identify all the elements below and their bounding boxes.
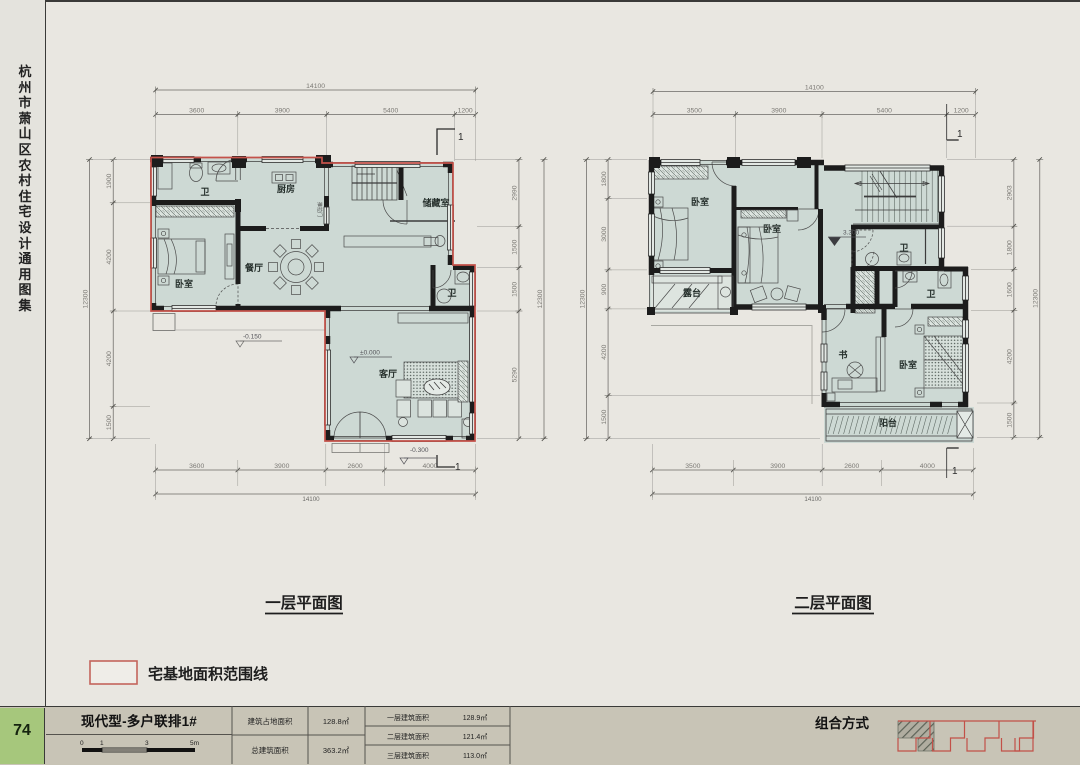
svg-text:1800: 1800 — [601, 171, 608, 186]
svg-text:113.0㎡: 113.0㎡ — [463, 752, 487, 760]
svg-text:12300: 12300 — [82, 289, 89, 308]
svg-text:客厅: 客厅 — [378, 368, 397, 379]
svg-text:12300: 12300 — [579, 289, 586, 308]
svg-text:建筑占地面积: 建筑占地面积 — [248, 716, 293, 726]
svg-text:1200: 1200 — [458, 107, 473, 114]
svg-text:121.4㎡: 121.4㎡ — [463, 733, 488, 741]
svg-text:128.8㎡: 128.8㎡ — [323, 717, 350, 726]
svg-text:3500: 3500 — [685, 463, 700, 470]
svg-text:卧室: 卧室 — [175, 278, 193, 289]
svg-text:总建筑面积: 总建筑面积 — [251, 745, 289, 755]
svg-text:-0.300: -0.300 — [410, 447, 429, 454]
svg-text:三层建筑面积: 三层建筑面积 — [387, 751, 429, 760]
svg-text:12300: 12300 — [537, 289, 544, 308]
svg-text:组合方式: 组合方式 — [815, 715, 869, 731]
svg-text:3900: 3900 — [274, 463, 289, 470]
svg-text:卫: 卫 — [899, 243, 908, 253]
svg-text:卫: 卫 — [447, 288, 456, 298]
svg-text:14100: 14100 — [306, 83, 325, 90]
svg-text:5400: 5400 — [383, 107, 398, 114]
svg-text:3900: 3900 — [771, 107, 786, 114]
svg-text:3.300: 3.300 — [843, 230, 860, 237]
svg-text:0: 0 — [80, 740, 84, 747]
svg-text:5400: 5400 — [877, 107, 892, 114]
svg-text:1: 1 — [458, 132, 464, 143]
svg-text:3600: 3600 — [189, 107, 204, 114]
svg-text:4000: 4000 — [920, 463, 935, 470]
svg-text:推拉门: 推拉门 — [316, 202, 323, 217]
svg-text:3: 3 — [145, 740, 149, 747]
svg-text:一层建筑面积: 一层建筑面积 — [387, 713, 429, 722]
svg-text:14100: 14100 — [804, 496, 822, 503]
svg-text:2600: 2600 — [348, 463, 363, 470]
svg-text:1500: 1500 — [601, 409, 608, 424]
svg-text:一层平面图: 一层平面图 — [265, 594, 343, 612]
svg-text:4200: 4200 — [601, 344, 608, 359]
svg-text:3000: 3000 — [601, 226, 608, 241]
svg-text:书: 书 — [838, 349, 847, 360]
svg-text:卧室: 卧室 — [691, 196, 709, 207]
svg-text:5m: 5m — [190, 740, 199, 747]
svg-text:卫: 卫 — [926, 289, 935, 299]
svg-text:1200: 1200 — [954, 107, 969, 114]
svg-text:1500: 1500 — [106, 415, 113, 430]
svg-text:卧室: 卧室 — [899, 359, 917, 370]
svg-text:3900: 3900 — [275, 107, 290, 114]
svg-text:2903: 2903 — [1007, 185, 1014, 200]
svg-text:12300: 12300 — [1033, 289, 1040, 308]
svg-text:1500: 1500 — [512, 282, 519, 297]
svg-text:3900: 3900 — [770, 463, 785, 470]
svg-text:1: 1 — [952, 466, 958, 477]
svg-text:卫: 卫 — [200, 187, 209, 197]
svg-text:4200: 4200 — [106, 351, 113, 366]
svg-text:2990: 2990 — [512, 185, 519, 200]
svg-text:128.9㎡: 128.9㎡ — [463, 714, 488, 722]
svg-text:3600: 3600 — [189, 463, 204, 470]
svg-text:2600: 2600 — [844, 463, 859, 470]
svg-text:1600: 1600 — [1007, 282, 1014, 297]
svg-text:3500: 3500 — [687, 107, 702, 114]
svg-text:14100: 14100 — [302, 496, 320, 503]
svg-text:露台: 露台 — [683, 287, 701, 298]
svg-text:1500: 1500 — [512, 239, 519, 254]
svg-text:宅基地面积范围线: 宅基地面积范围线 — [148, 665, 268, 683]
svg-text:二层平面图: 二层平面图 — [794, 594, 872, 612]
svg-text:储藏室: 储藏室 — [422, 197, 449, 208]
svg-text:阳台: 阳台 — [879, 417, 897, 428]
svg-text:餐厅: 餐厅 — [244, 262, 263, 273]
svg-text:1500: 1500 — [1007, 412, 1014, 427]
svg-text:1900: 1900 — [106, 173, 113, 188]
svg-text:厨房: 厨房 — [277, 183, 295, 194]
svg-text:1: 1 — [100, 740, 104, 747]
svg-text:4200: 4200 — [106, 249, 113, 264]
svg-text:4200: 4200 — [1007, 349, 1014, 364]
svg-text:-0.150: -0.150 — [243, 334, 262, 341]
svg-text:1: 1 — [957, 129, 963, 140]
svg-text:4000: 4000 — [422, 463, 437, 470]
svg-text:14100: 14100 — [805, 84, 824, 91]
svg-text:363.2㎡: 363.2㎡ — [323, 746, 350, 755]
svg-text:5290: 5290 — [512, 367, 519, 382]
svg-text:±0.000: ±0.000 — [360, 350, 380, 357]
svg-text:二层建筑面积: 二层建筑面积 — [387, 732, 429, 741]
svg-text:900: 900 — [601, 284, 608, 296]
svg-text:1: 1 — [455, 462, 461, 473]
svg-text:1800: 1800 — [1007, 240, 1014, 255]
